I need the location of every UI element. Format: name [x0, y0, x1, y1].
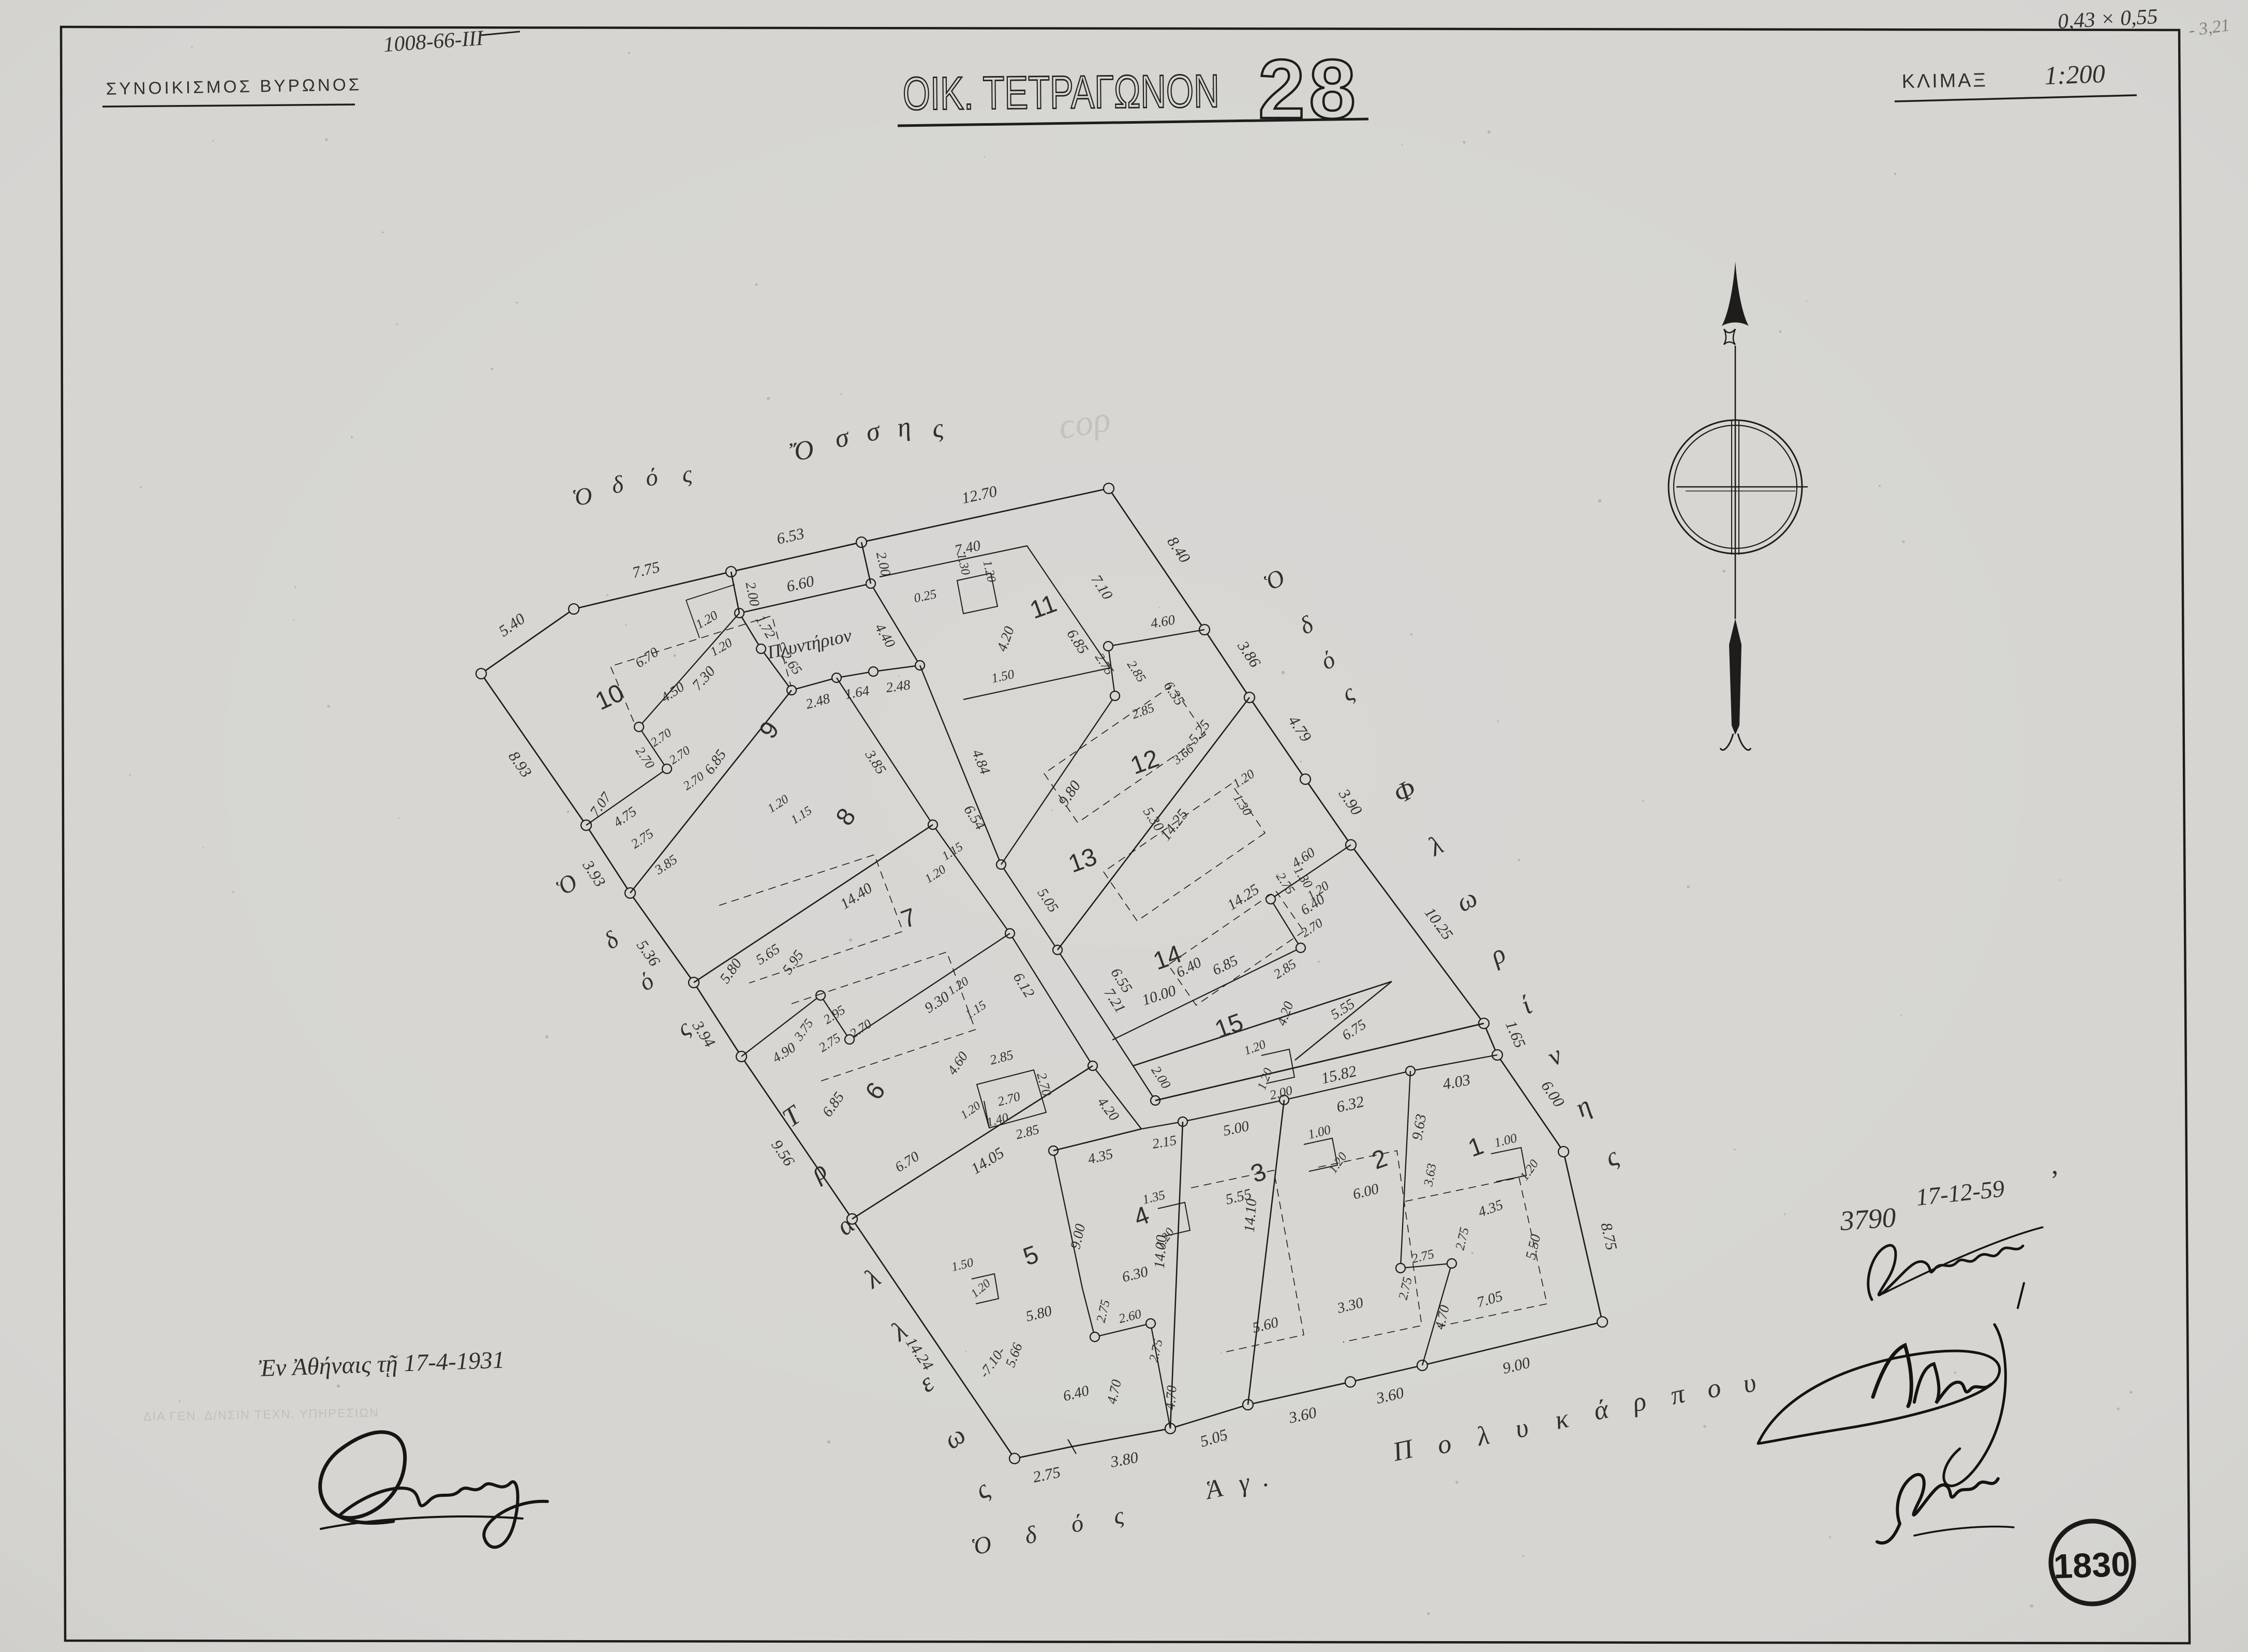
- svg-text:3790: 3790: [1839, 1202, 1897, 1237]
- svg-text:ΚΛΙΜΑΞ: ΚΛΙΜΑΞ: [1901, 69, 1988, 93]
- svg-text:28: 28: [1258, 42, 1360, 136]
- svg-text:4.70: 4.70: [1162, 1385, 1179, 1410]
- svg-text:14.10: 14.10: [1241, 1198, 1260, 1232]
- svg-text:ΟΙΚ. ΤΕΤΡΑΓΩΝΟΝ: ΟΙΚ. ΤΕΤΡΑΓΩΝΟΝ: [902, 66, 1219, 120]
- svg-text:1:200: 1:200: [2044, 59, 2105, 90]
- svg-text:1830: 1830: [2053, 1545, 2131, 1586]
- svg-text:2.48: 2.48: [885, 677, 911, 695]
